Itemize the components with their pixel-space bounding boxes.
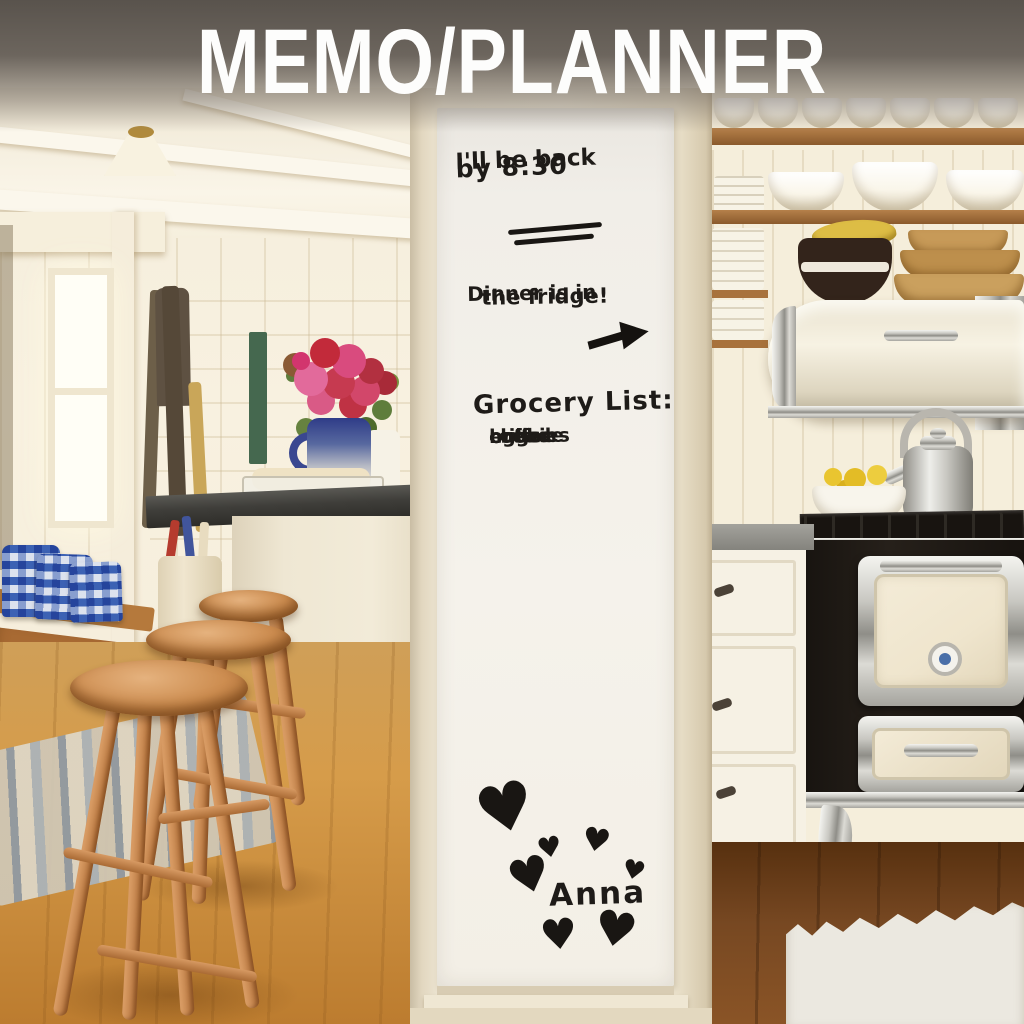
gingham-fabric-stack [69,561,123,623]
bar-stool-front [70,660,248,716]
dish-stack [712,228,764,290]
dish-stack [714,176,764,212]
note-back-line2: by 8:30 [455,151,568,184]
cabinet-drawer [706,560,796,636]
bowl-stripe [801,262,889,272]
bar-stool-middle [146,620,291,660]
dish-stack [712,300,764,340]
column-baseboard [437,986,674,995]
hood-chrome-band [768,406,1024,418]
column-baseboard [424,995,688,1008]
page-title: MEMO/PLANNER [92,10,932,115]
heart-icon: ♥ [579,822,613,858]
gray-countertop [698,524,814,550]
stove-warming-hood [768,300,1024,418]
hood-chrome-ring [772,306,796,412]
window-shutter [0,225,13,570]
mini-shelf [708,290,768,298]
stool-shadow [40,960,300,1024]
warming-drawer-handle [904,744,978,757]
grocery-list-title: Grocery List: [473,385,674,420]
hood-handle [884,330,958,341]
bar-stool-back [199,590,298,622]
window-muntin [54,388,108,395]
grocery-item: cookies [489,427,570,446]
note-dinner-line2: the fridge! [481,284,609,310]
kettle-knob [930,428,946,439]
column-baseboard [410,1008,712,1024]
flower-bouquet [292,352,310,370]
mini-shelf [708,340,768,348]
green-picture-frame [249,332,267,464]
heart-icon: ♥ [538,912,580,958]
title-banner: MEMO/PLANNER [0,0,1024,132]
signature-anna: Anna [548,874,646,913]
oven-door-handle [880,560,1002,572]
flower-leaves [286,370,298,382]
doorway-header [0,212,165,252]
gauge-center [939,653,951,665]
lemons [824,468,842,486]
product-photo: I'll be back by 8:30 Dinner is in the fr… [0,0,1024,1024]
window [48,268,114,528]
